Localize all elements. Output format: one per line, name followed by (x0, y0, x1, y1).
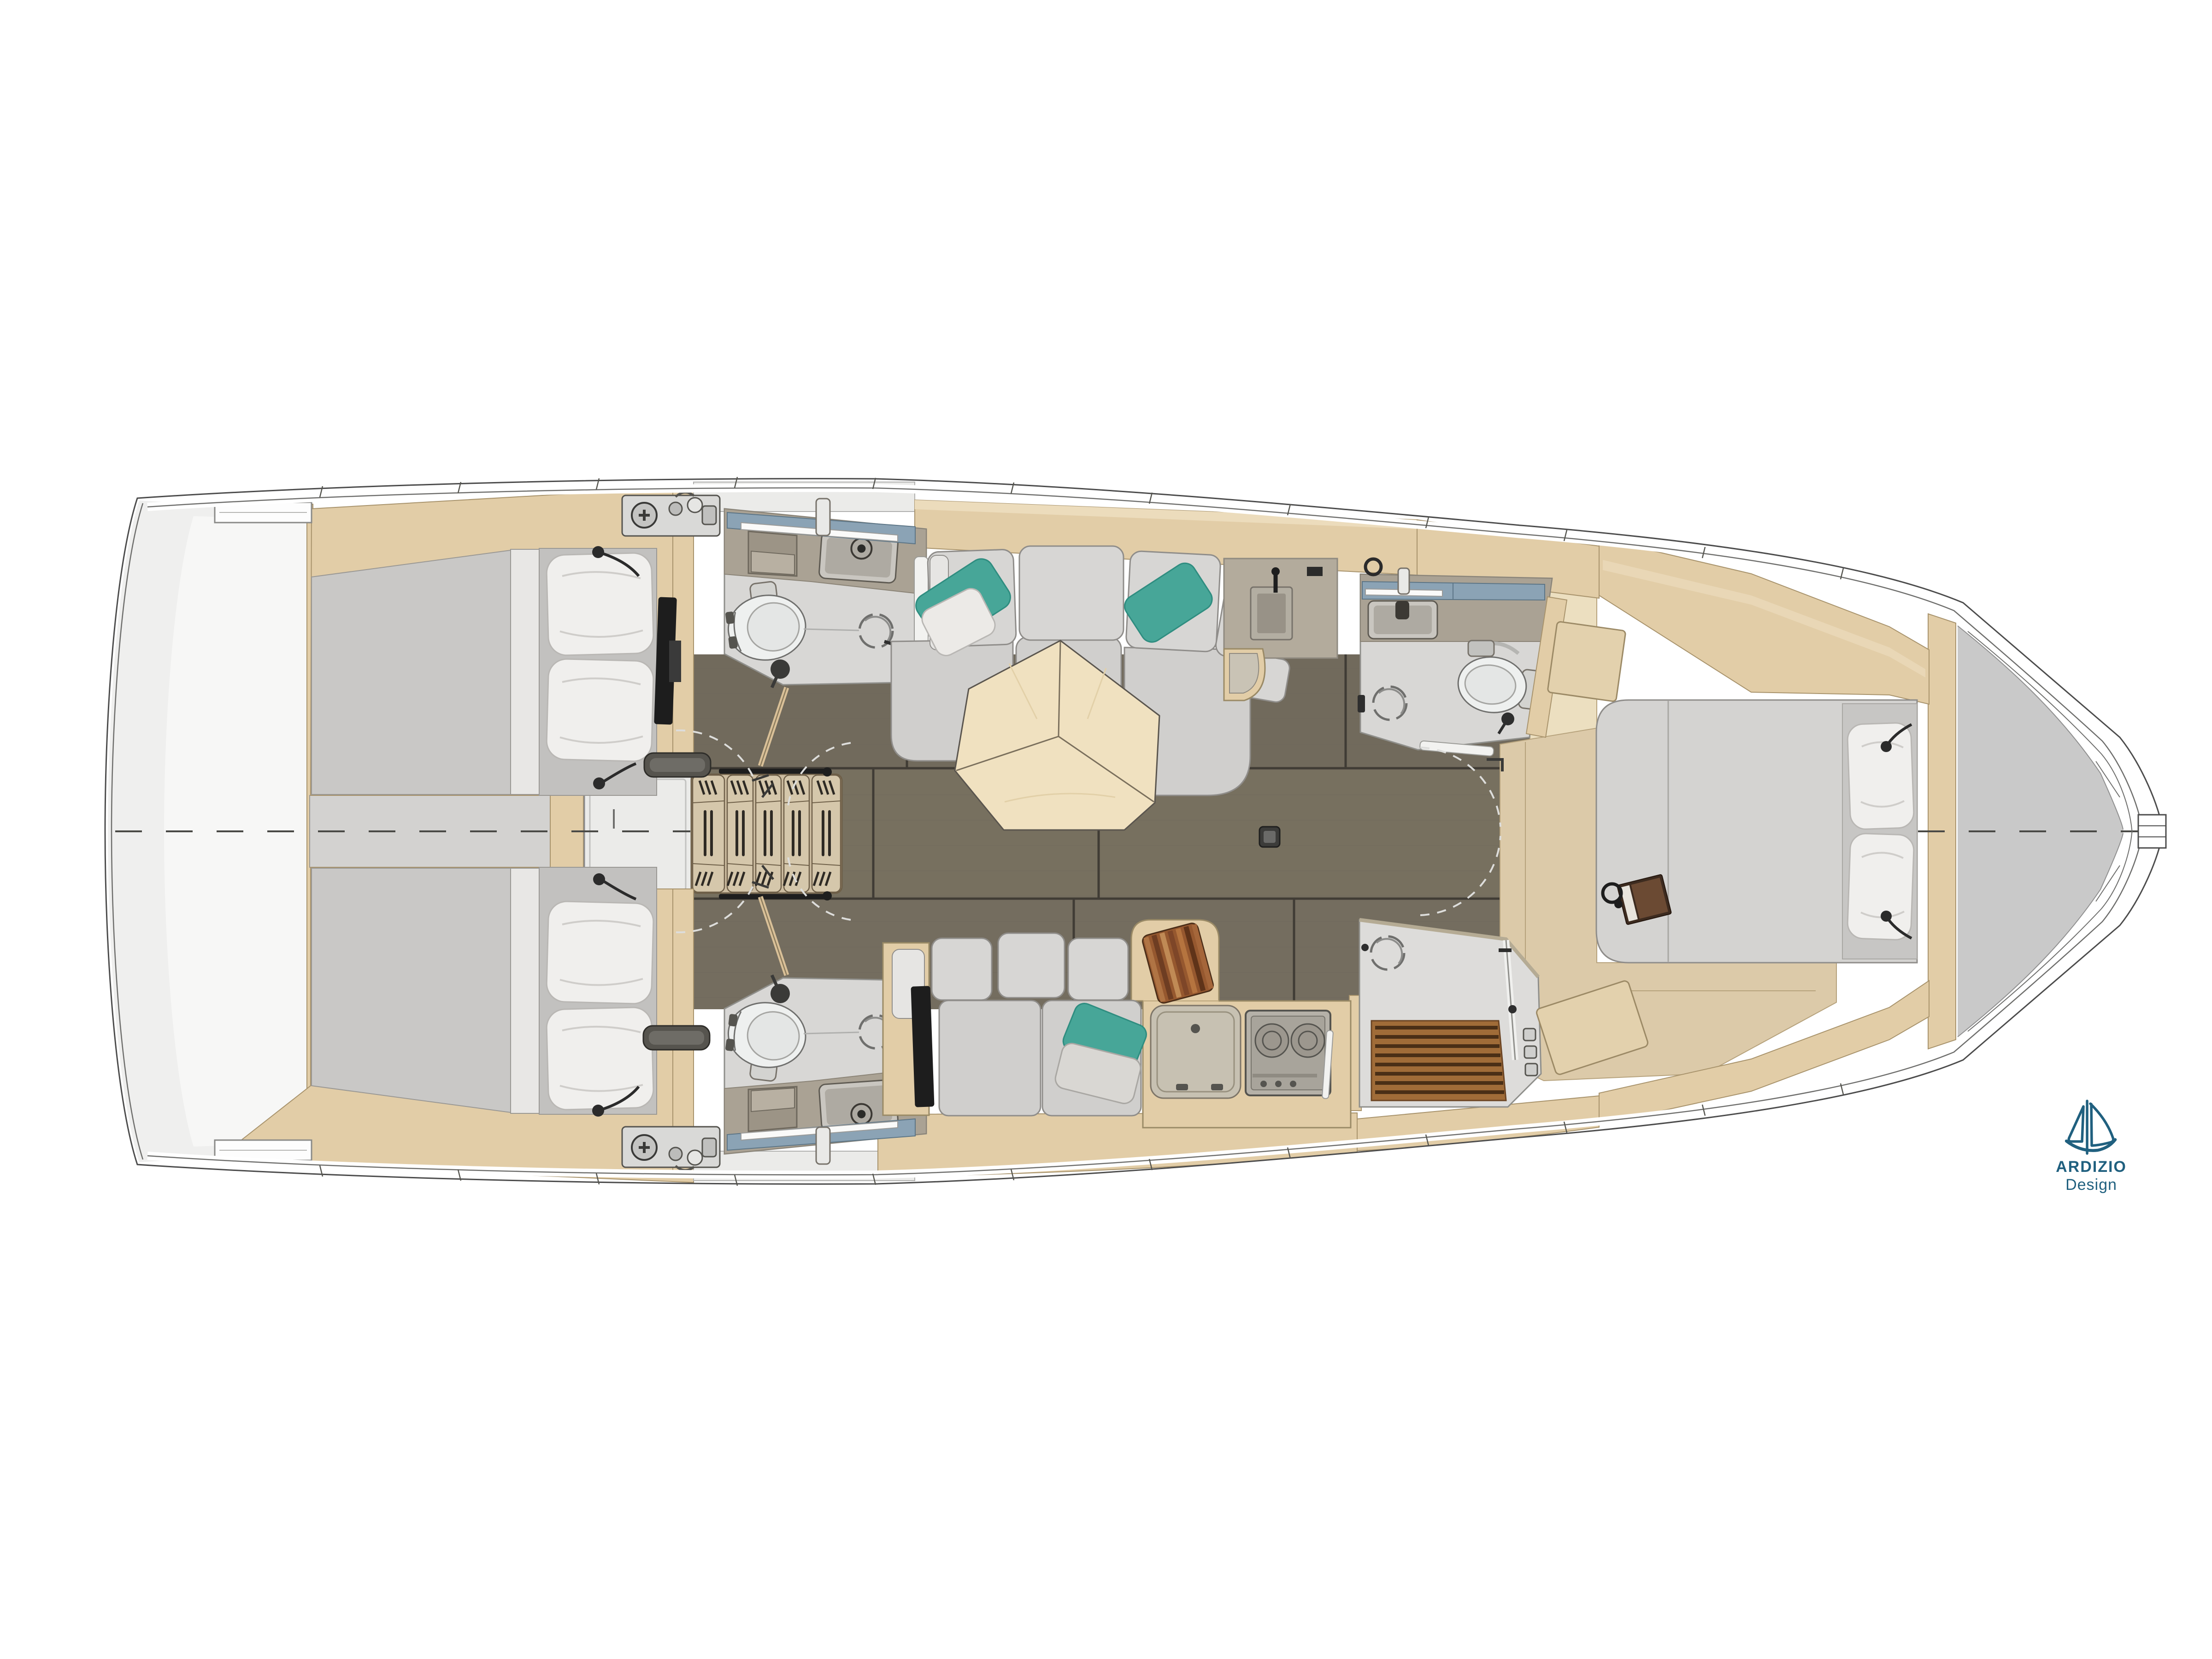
svg-text:Design: Design (2065, 1176, 2117, 1194)
svg-text:ARDIZIO: ARDIZIO (2056, 1158, 2127, 1176)
